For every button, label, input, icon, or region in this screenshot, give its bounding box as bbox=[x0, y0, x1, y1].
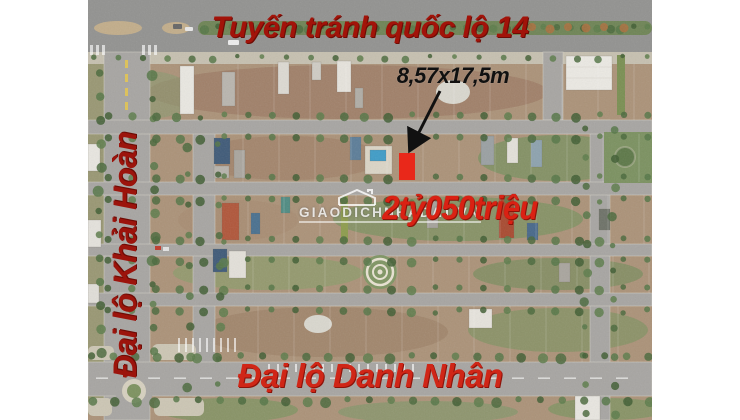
house-icon bbox=[335, 189, 379, 206]
highlighted-plot-marker bbox=[399, 153, 415, 180]
price-label: 2tỷ050triệu bbox=[377, 189, 543, 227]
top-road-label: Tuyến tránh quốc lộ 14 bbox=[88, 11, 652, 45]
listing-image: Tuyến tránh quốc lộ 14 Đại lộ Khải Hoàn … bbox=[0, 0, 740, 420]
plot-size-label: 8,57x17,5m bbox=[378, 63, 528, 89]
bottom-road-label: Đại lộ Danh Nhân bbox=[88, 357, 652, 395]
